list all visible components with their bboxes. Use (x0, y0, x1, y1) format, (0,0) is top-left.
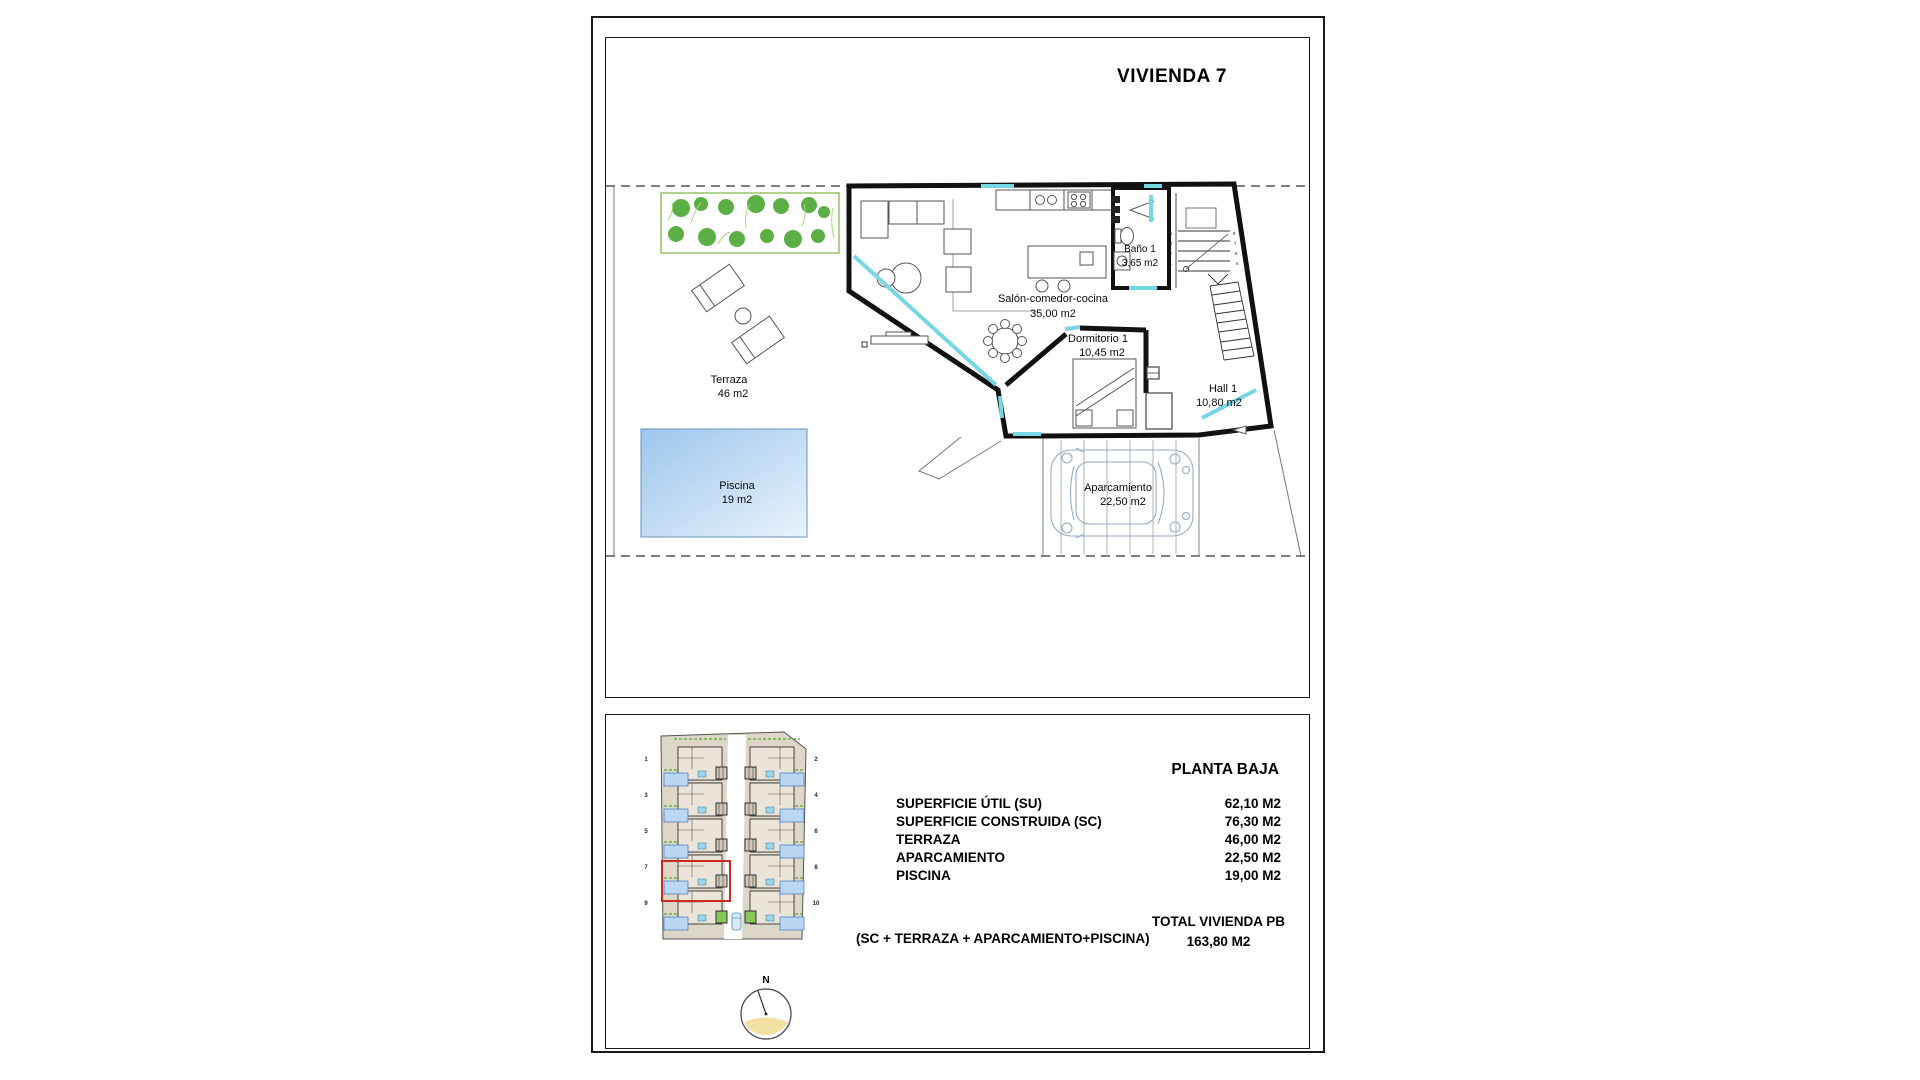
dining-table (984, 320, 1027, 363)
kitchen-island (1028, 246, 1106, 278)
room-area-salon: 35,00 m2 (1030, 308, 1076, 320)
summary-row: SUPERFICIE ÚTIL (SU) 62,10 M2 (896, 795, 1281, 813)
floor-plan-drawing: 4 3 2 1 8 7 6 5 (606, 38, 1311, 699)
summary-row-value: 22,50 M2 (1225, 849, 1281, 867)
svg-text:1: 1 (644, 757, 648, 763)
armchair (946, 267, 971, 292)
svg-text:10: 10 (813, 901, 820, 907)
summary-row-label: TERRAZA (896, 831, 961, 849)
room-label-bano: Baño 1 (1124, 244, 1156, 255)
summary-row: SUPERFICIE CONSTRUIDA (SC) 76,30 M2 (896, 813, 1281, 831)
bed (1073, 359, 1136, 428)
bathroom (1111, 188, 1169, 288)
summary-row-value: 76,30 M2 (1225, 813, 1281, 831)
total-block: TOTAL VIVIENDA PB 163,80 M2 (1106, 912, 1331, 952)
room-label-salon: Salón-comedor-cocina (998, 293, 1109, 305)
summary-rows: SUPERFICIE ÚTIL (SU) 62,10 M2 SUPERFICIE… (896, 795, 1281, 885)
room-area-bano: 3,65 m2 (1122, 258, 1159, 269)
summary-row-value: 62,10 M2 (1225, 795, 1281, 813)
north-compass: N (731, 970, 801, 1045)
summary-row: APARCAMIENTO 22,50 M2 (896, 849, 1281, 867)
site-car (732, 913, 741, 930)
summary-row: PISCINA 19,00 M2 (896, 867, 1281, 885)
armchair (944, 229, 971, 254)
summary-row-label: PISCINA (896, 867, 951, 885)
svg-text:9: 9 (644, 901, 648, 907)
summary-row-label: SUPERFICIE CONSTRUIDA (SC) (896, 813, 1102, 831)
svg-text:5: 5 (644, 829, 648, 835)
summary-row-label: APARCAMIENTO (896, 849, 1005, 867)
summary-row-label: SUPERFICIE ÚTIL (SU) (896, 795, 1042, 813)
sun-loungers (692, 264, 785, 364)
room-label-dormitorio: Dormitorio 1 (1068, 333, 1128, 345)
summary-header: PLANTA BAJA (1171, 761, 1279, 779)
svg-text:8: 8 (814, 865, 818, 871)
summary-panel: 1 3 5 7 9 2 4 6 8 10 N PLANTA BAJA (605, 714, 1310, 1049)
total-value: 163,80 M2 (1106, 932, 1331, 952)
svg-text:2: 2 (814, 757, 818, 763)
stool (1036, 280, 1048, 292)
room-label-terraza: Terraza (711, 374, 749, 386)
closet (1146, 393, 1172, 429)
room-label-piscina: Piscina (719, 480, 755, 492)
room-area-hall: 10,80 m2 (1196, 397, 1242, 409)
site-plan: 1 3 5 7 9 2 4 6 8 10 (634, 723, 854, 978)
room-area-aparcamiento: 22,50 m2 (1100, 496, 1146, 508)
tv-bench (871, 336, 928, 344)
drawing-sheet: 4 3 2 1 8 7 6 5 (591, 16, 1325, 1053)
floor-plan-panel: 4 3 2 1 8 7 6 5 (605, 37, 1310, 698)
stool (1058, 280, 1070, 292)
room-area-terraza: 46 m2 (718, 388, 749, 400)
svg-text:4: 4 (814, 793, 818, 799)
room-label-aparcamiento: Aparcamiento (1084, 482, 1152, 494)
summary-row-value: 46,00 M2 (1225, 831, 1281, 849)
svg-text:6: 6 (814, 829, 818, 835)
side-table (735, 308, 751, 324)
garden-planter (661, 193, 839, 253)
svg-text:3: 3 (644, 793, 648, 799)
total-label: TOTAL VIVIENDA PB (1106, 912, 1331, 932)
summary-row-value: 19,00 M2 (1225, 867, 1281, 885)
page-title: VIVIENDA 7 (1072, 66, 1272, 88)
north-label: N (762, 975, 769, 986)
svg-text:7: 7 (644, 865, 648, 871)
summary-row: TERRAZA 46,00 M2 (896, 831, 1281, 849)
bathroom-wall-units (1111, 196, 1120, 223)
room-label-hall: Hall 1 (1209, 383, 1237, 395)
room-area-piscina: 19 m2 (722, 494, 753, 506)
room-area-dormitorio: 10,45 m2 (1079, 347, 1125, 359)
